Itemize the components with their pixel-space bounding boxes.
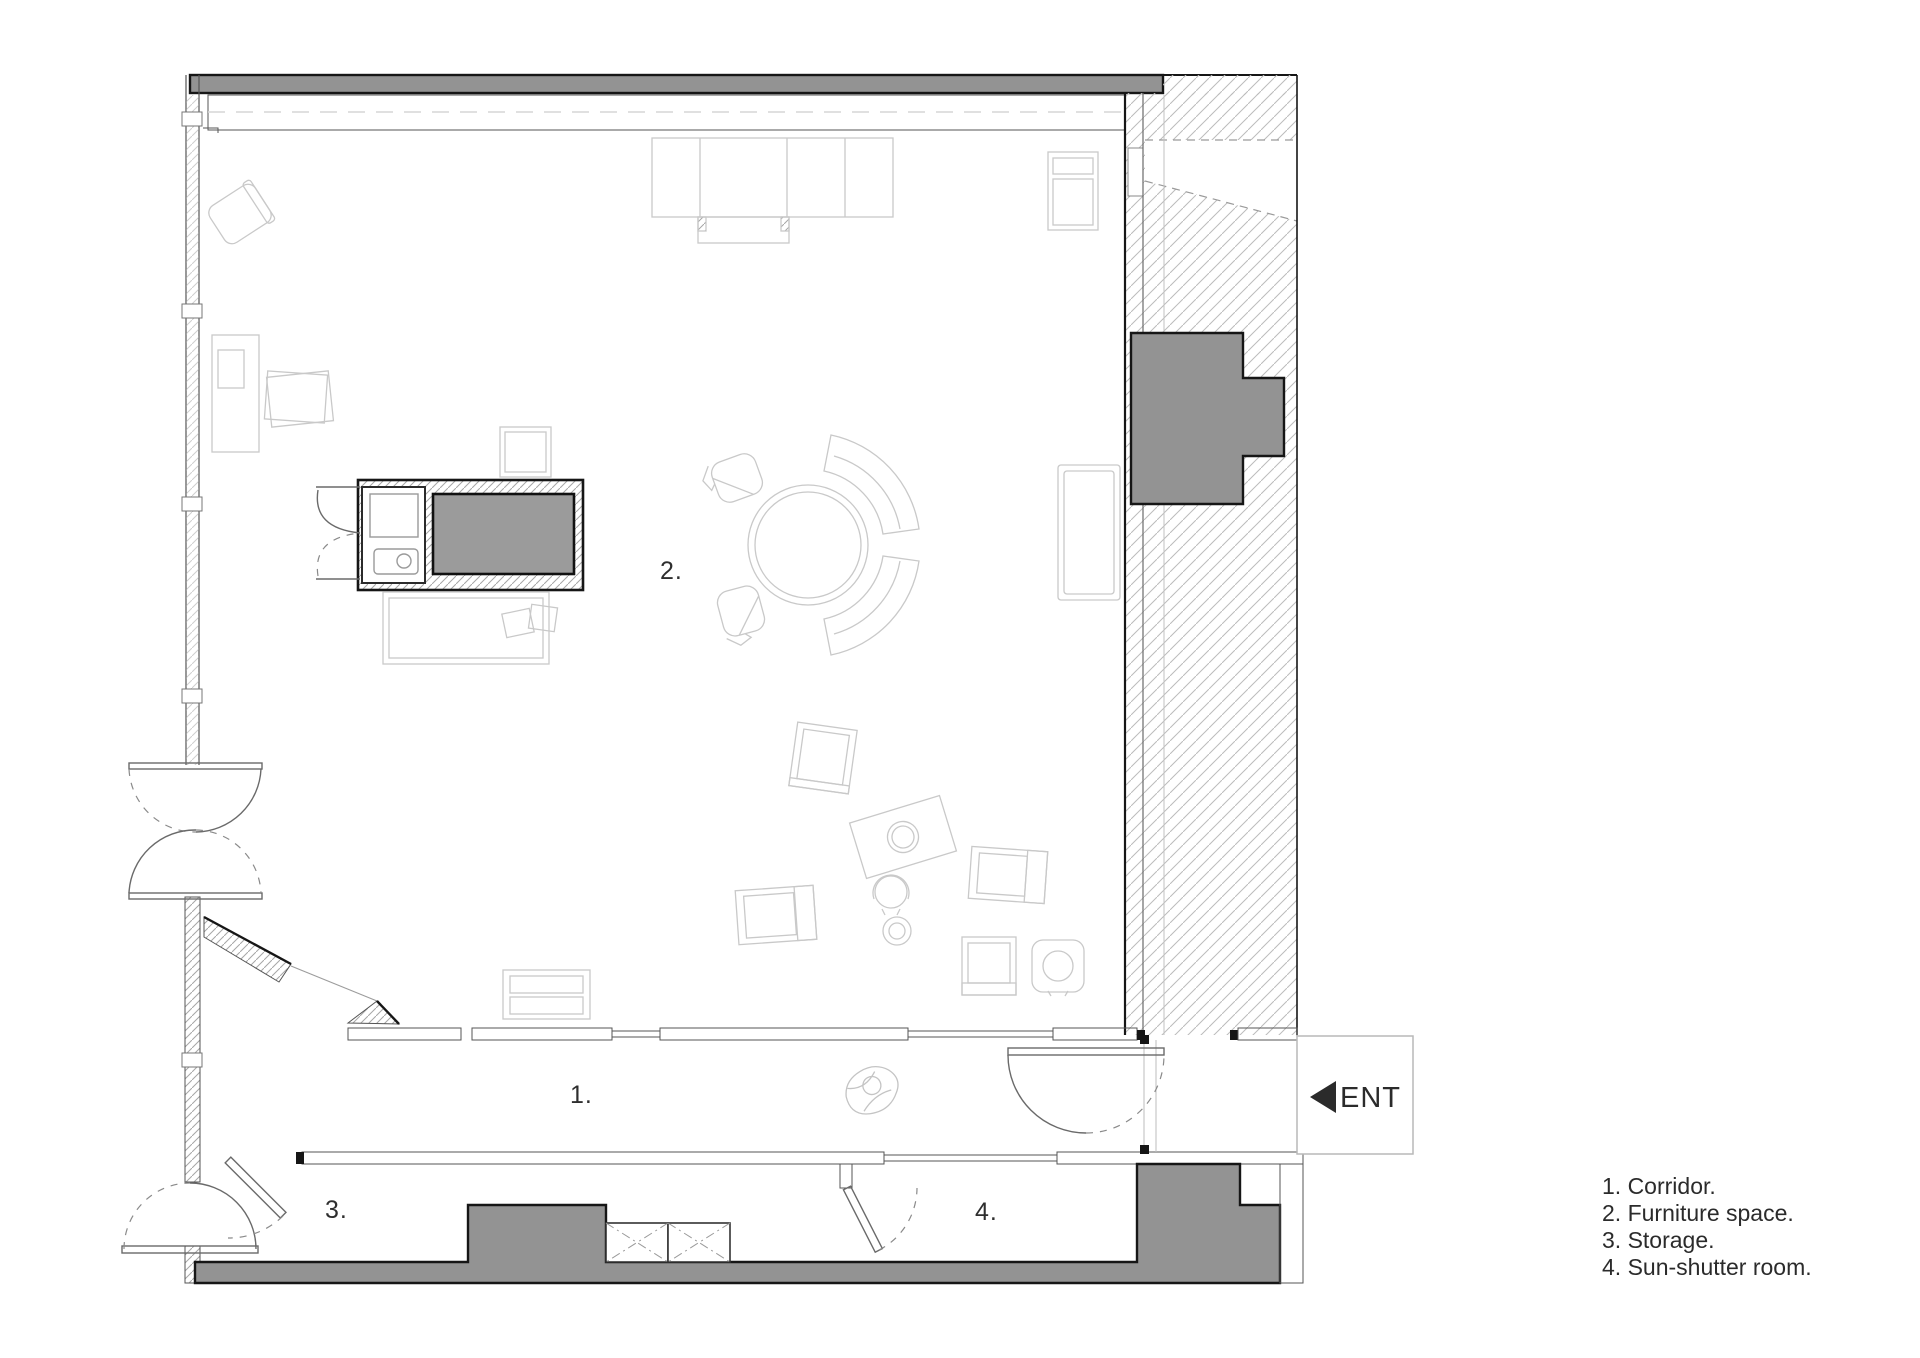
- legend-item-corridor: 1. Corridor.: [1602, 1173, 1716, 1199]
- left-shelf: [212, 335, 259, 452]
- angled-wall-wedges: [204, 917, 399, 1024]
- top-table: [652, 138, 893, 243]
- right-shelf: [1058, 465, 1120, 600]
- floor-plan-page: ENT 1. 2. 3. 4. 1. Corridor. 2. Furnitur…: [0, 0, 1920, 1358]
- walls: [182, 75, 1303, 1283]
- label-storage: 3.: [325, 1196, 348, 1224]
- room4-wall-stub: [840, 1164, 852, 1188]
- label-sun-shutter: 4.: [975, 1198, 998, 1226]
- legend-item-furniture: 2. Furniture space.: [1602, 1200, 1794, 1226]
- corridor-bottom-wall: [296, 1152, 1303, 1164]
- right-wall: [1125, 75, 1297, 1035]
- scatter-cluster: [735, 722, 1084, 996]
- tilted-table-left: [264, 371, 333, 427]
- storage-door: [225, 1157, 286, 1238]
- bottom-right-hatch: [1280, 1164, 1303, 1283]
- room-labels: 1. 2. 3. 4.: [325, 557, 998, 1226]
- top-right-cabinet: [1048, 152, 1098, 230]
- bottom-wall: [195, 1164, 1280, 1283]
- kitchen-double-door: [316, 487, 360, 579]
- entrance-label: ENT: [1340, 1082, 1401, 1114]
- legend-item-sunshutter: 4. Sun-shutter room.: [1602, 1254, 1812, 1280]
- round-table-group: [699, 435, 919, 655]
- square-table: [500, 427, 551, 477]
- legend-item-storage: 3. Storage.: [1602, 1227, 1715, 1253]
- floor-plan-drawing: ENT 1. 2. 3. 4. 1. Corridor. 2. Furnitur…: [0, 0, 1920, 1358]
- entrance-door: [1008, 1048, 1164, 1133]
- bottom-bench: [503, 970, 590, 1019]
- kitchen-counter-dark: [433, 494, 574, 574]
- top-wall: [203, 95, 1125, 133]
- storage-crates: [606, 1223, 730, 1262]
- left-double-door: [129, 763, 262, 899]
- left-window-wall: [182, 75, 202, 1283]
- label-corridor: 1.: [570, 1081, 593, 1109]
- entrance-marker: ENT: [1297, 1036, 1413, 1154]
- chair-top-left: [204, 179, 275, 249]
- person-figure: [838, 1058, 907, 1123]
- kitchen-rug: [383, 592, 558, 664]
- bottom-left-door: [122, 1183, 258, 1253]
- doors: [122, 763, 1164, 1253]
- sink-basin: [370, 494, 418, 537]
- label-furniture-space: 2.: [660, 557, 683, 585]
- kitchen-block: [316, 480, 583, 664]
- room4-door: [843, 1186, 917, 1252]
- corridor-glazing: [1140, 1035, 1156, 1154]
- top-beam: [190, 75, 1163, 93]
- legend: 1. Corridor. 2. Furniture space. 3. Stor…: [1602, 1173, 1812, 1280]
